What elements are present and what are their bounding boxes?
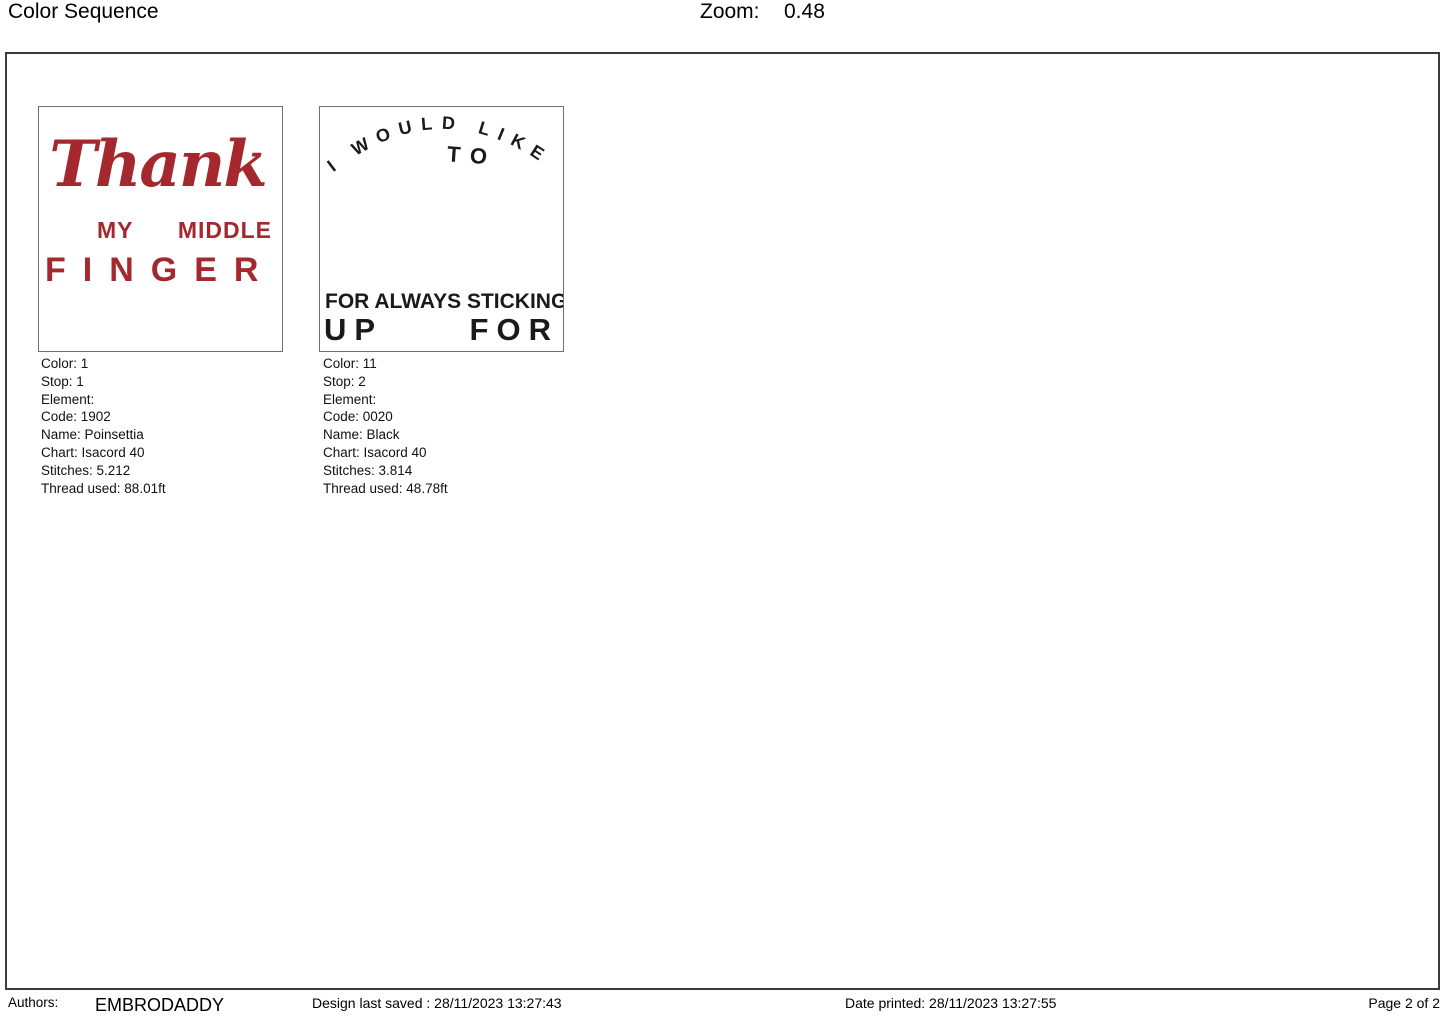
color-sequence-page: Color Sequence Zoom: 0.48 Thank MY MIDDL…	[0, 0, 1445, 1021]
design-preview-2: I WOULD LIKE TO FOR ALWAYS STICKING UP F…	[319, 106, 564, 352]
design1-chart-line: Chart: Isacord 40	[41, 444, 311, 462]
design2-chart-line: Chart: Isacord 40	[323, 444, 593, 462]
design2-name-line: Name: Black	[323, 426, 593, 444]
design1-color-line: Color: 1	[41, 355, 311, 373]
design1-thread-line: Thread used: 88.01ft	[41, 480, 311, 498]
design1-name-line: Name: Poinsettia	[41, 426, 311, 444]
design2-stop-line: Stop: 2	[323, 373, 593, 391]
design-last-saved: Design last saved : 28/11/2023 13:27:43	[312, 995, 562, 1011]
design1-stitches-line: Stitches: 5.212	[41, 462, 311, 480]
design2-stitches-line: Stitches: 3.814	[323, 462, 593, 480]
design2-details: Color: 11 Stop: 2 Element: Code: 0020 Na…	[323, 355, 593, 497]
page-title: Color Sequence	[8, 0, 159, 24]
design1-details: Color: 1 Stop: 1 Element: Code: 1902 Nam…	[41, 355, 311, 497]
design1-line-3: FINGER	[45, 253, 275, 287]
print-sheet: Thank MY MIDDLE FINGER I WOULD LIKE TO F…	[5, 52, 1440, 990]
design1-script-word: Thank	[39, 133, 276, 197]
date-printed: Date printed: 28/11/2023 13:27:55	[845, 995, 1056, 1011]
design1-element-line: Element:	[41, 391, 311, 409]
design2-bottom-line-2: UP FOR ME	[324, 313, 559, 352]
design1-line-2: MY MIDDLE	[97, 219, 272, 242]
design2-to-text: TO	[446, 143, 498, 168]
design2-code-line: Code: 0020	[323, 408, 593, 426]
zoom-value: 0.48	[784, 0, 825, 24]
page-number: Page 2 of 2	[1368, 995, 1440, 1011]
design-preview-1: Thank MY MIDDLE FINGER	[38, 106, 283, 352]
design1-stop-line: Stop: 1	[41, 373, 311, 391]
design2-thread-line: Thread used: 48.78ft	[323, 480, 593, 498]
authors-value: EMBRODADDY	[95, 995, 224, 1016]
design2-color-line: Color: 11	[323, 355, 593, 373]
design2-element-line: Element:	[323, 391, 593, 409]
design1-code-line: Code: 1902	[41, 408, 311, 426]
authors-label: Authors:	[8, 995, 58, 1010]
zoom-label: Zoom:	[700, 0, 760, 24]
design2-arc-text: I WOULD LIKE	[323, 113, 555, 176]
design2-bottom-line-1: FOR ALWAYS STICKING	[325, 290, 558, 313]
